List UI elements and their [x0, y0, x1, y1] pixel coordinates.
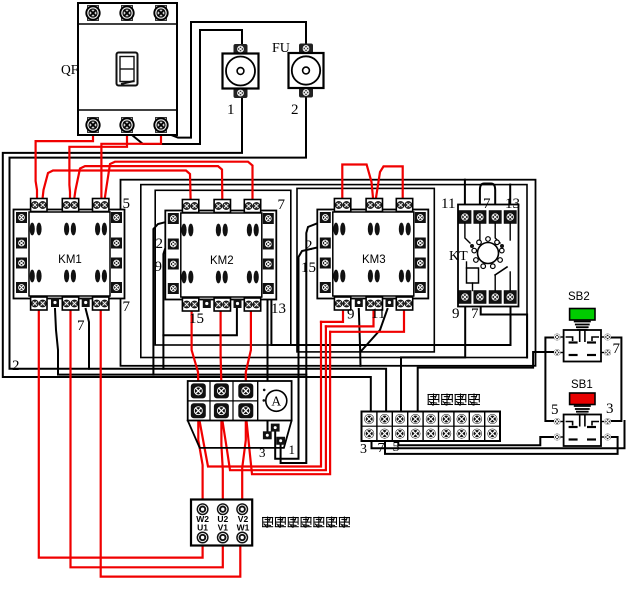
svg-text:7: 7 [123, 299, 131, 315]
svg-text:2: 2 [305, 238, 313, 254]
svg-text:9: 9 [347, 307, 355, 323]
svg-text:2: 2 [12, 358, 20, 374]
svg-text:3: 3 [360, 442, 367, 457]
svg-text:W1: W1 [237, 523, 250, 533]
svg-text:11: 11 [371, 306, 385, 322]
svg-text:A: A [271, 394, 281, 409]
svg-text:7: 7 [278, 197, 286, 213]
svg-text:SB1: SB1 [571, 379, 593, 391]
svg-text:5: 5 [551, 402, 559, 418]
svg-text:KM1: KM1 [58, 254, 82, 266]
svg-text:1: 1 [289, 442, 296, 457]
svg-text:15: 15 [189, 311, 204, 327]
svg-text:9: 9 [452, 306, 460, 322]
svg-text:1: 1 [227, 102, 235, 118]
svg-text:KM3: KM3 [362, 254, 386, 266]
svg-text:KT: KT [449, 249, 468, 264]
svg-text:13: 13 [505, 196, 520, 212]
svg-text:3: 3 [259, 445, 266, 460]
svg-text:13: 13 [271, 301, 286, 317]
svg-text:FU: FU [272, 41, 290, 56]
svg-text:SB2: SB2 [568, 291, 590, 303]
svg-text:7: 7 [77, 318, 85, 334]
svg-text:11: 11 [441, 196, 455, 212]
svg-text:QF: QF [61, 62, 79, 77]
svg-text:7: 7 [378, 441, 385, 456]
svg-text:V1: V1 [218, 523, 229, 533]
svg-text:5: 5 [393, 440, 400, 455]
svg-text:3: 3 [606, 401, 614, 417]
svg-text:KM2: KM2 [210, 255, 234, 267]
svg-text:7: 7 [483, 196, 491, 212]
svg-text:U1: U1 [197, 523, 208, 533]
svg-text:2: 2 [156, 236, 164, 252]
svg-text:7: 7 [613, 341, 621, 357]
svg-text:9: 9 [155, 259, 163, 275]
svg-text:5: 5 [123, 196, 131, 212]
svg-text:7: 7 [471, 306, 479, 322]
svg-text:15: 15 [301, 260, 316, 276]
svg-text:2: 2 [291, 102, 299, 118]
